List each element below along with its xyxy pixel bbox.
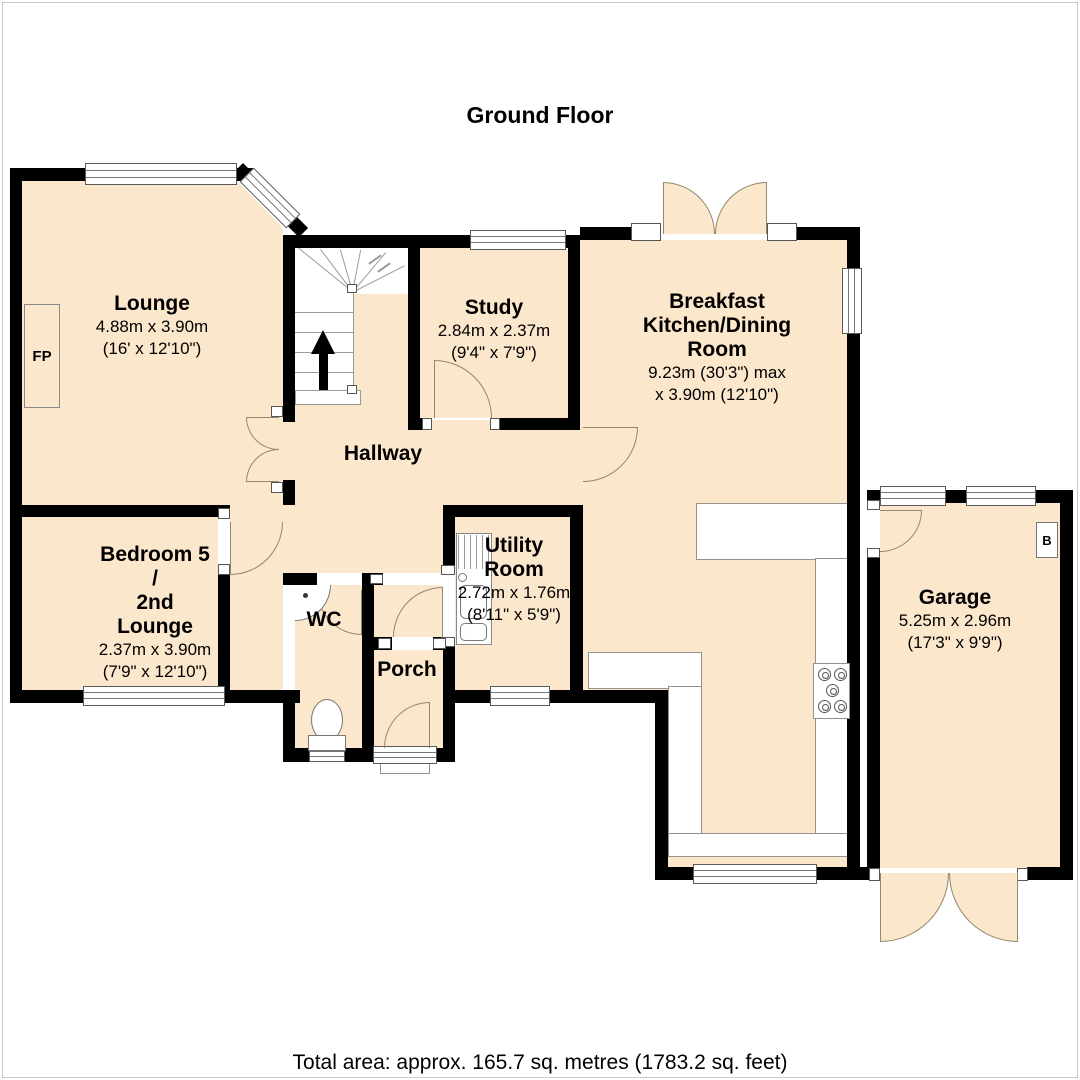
garage-label: Garage 5.25m x 2.96m (17'3" x 9'9") — [899, 586, 1011, 654]
door-jamb — [218, 564, 230, 575]
wall — [1060, 490, 1073, 880]
garage-door-leaf — [949, 873, 1018, 942]
study-label: Study 2.84m x 2.37m (9'4" x 7'9") — [438, 296, 550, 364]
french-door-leaf — [715, 182, 767, 234]
bedroom5-name-line3: 2nd — [99, 591, 211, 615]
bedroom5-dim-ft: (7'9" x 12'10") — [99, 661, 211, 683]
window — [85, 163, 237, 185]
door-post — [767, 223, 797, 241]
bedroom5-name-line2: / — [99, 567, 211, 591]
door-jamb — [433, 638, 446, 649]
door-post — [1017, 868, 1028, 881]
garage-door-leaf — [880, 873, 949, 942]
door-jamb — [370, 574, 383, 584]
toilet-cistern — [308, 735, 346, 751]
bedroom5-name-line4: Lounge — [99, 615, 211, 639]
stair-newel-post — [347, 284, 357, 293]
hob-burner — [818, 700, 831, 713]
wall — [283, 235, 295, 422]
lounge-dim-ft: (16' x 12'10") — [96, 338, 208, 360]
kitchen-counter-top — [696, 503, 848, 560]
fireplace-label: FP — [32, 348, 51, 365]
window — [83, 686, 225, 706]
bedroom5-label: Bedroom 5 / 2nd Lounge 2.37m x 3.90m (7'… — [99, 543, 211, 683]
door-jamb — [218, 508, 230, 519]
stair-newel-post — [347, 385, 357, 394]
door-jamb — [422, 418, 432, 430]
kitchen-counter-left — [668, 686, 702, 857]
wc-name: WC — [307, 608, 342, 632]
wall — [218, 575, 230, 690]
door-jamb — [271, 406, 283, 417]
garage-name: Garage — [899, 586, 1011, 610]
wall — [362, 585, 374, 748]
porch-label: Porch — [377, 658, 437, 682]
wc-label: WC — [307, 608, 342, 632]
garage-dim-ft: (17'3" x 9'9") — [899, 632, 1011, 654]
study-name: Study — [438, 296, 550, 320]
kitchen-label: Breakfast Kitchen/Dining Room 9.23m (30'… — [643, 290, 791, 406]
door-jamb — [867, 548, 880, 558]
garage-dim-m: 5.25m x 2.96m — [899, 610, 1011, 632]
window — [966, 486, 1036, 506]
window — [693, 864, 817, 884]
kitchen-name-line1: Breakfast — [643, 290, 791, 314]
fireplace: FP — [24, 304, 60, 408]
door-jamb — [441, 565, 455, 575]
wall — [570, 505, 583, 702]
wall — [580, 227, 635, 240]
boiler: B — [1036, 522, 1058, 558]
utility-label: Utility Room 2.72m x 1.76m (8'11" x 5'9"… — [458, 534, 570, 626]
floorplan-canvas: Ground Floor — [0, 0, 1080, 1080]
utility-dim-ft: (8'11" x 5'9") — [458, 604, 570, 626]
lounge-label: Lounge 4.88m x 3.90m (16' x 12'10") — [96, 292, 208, 360]
wall — [283, 480, 295, 505]
hob-burner — [826, 684, 839, 697]
page-title: Ground Floor — [467, 102, 614, 129]
utility-name-line1: Utility — [458, 534, 570, 558]
hallway-label: Hallway — [344, 442, 422, 466]
study-dim-m: 2.84m x 2.37m — [438, 320, 550, 342]
garage-floor — [880, 503, 1060, 868]
door-post — [631, 223, 661, 241]
hallway-name: Hallway — [344, 442, 422, 466]
wall — [568, 235, 580, 425]
wall — [10, 505, 230, 517]
wall — [1027, 867, 1073, 880]
kitchen-name-line3: Room — [643, 338, 791, 362]
bedroom5-dim-m: 2.37m x 3.90m — [99, 639, 211, 661]
wall — [816, 867, 860, 880]
window — [470, 230, 566, 250]
stair-tread-line — [295, 312, 353, 313]
door-post — [869, 868, 880, 881]
window — [490, 686, 550, 706]
stair-up-arrow-shaft — [319, 352, 328, 390]
utility-name-line2: Room — [458, 558, 570, 582]
wall — [443, 637, 455, 762]
kitchen-dim-line2: x 3.90m (12'10") — [643, 384, 791, 406]
stair-up-arrow-head — [311, 330, 335, 354]
boiler-label: B — [1042, 533, 1051, 548]
wall — [443, 690, 668, 703]
kitchen-counter-bottom — [668, 833, 848, 857]
french-door-leaf — [663, 182, 715, 234]
wall — [655, 690, 668, 880]
total-area-text: Total area: approx. 165.7 sq. metres (17… — [293, 1051, 788, 1075]
basin-tap — [303, 593, 308, 598]
door-jamb — [378, 638, 391, 649]
wall — [443, 505, 583, 517]
window — [880, 486, 946, 506]
kitchen-dim-line1: 9.23m (30'3") max — [643, 362, 791, 384]
door-jamb — [867, 500, 880, 510]
hob-burner — [834, 668, 847, 681]
door-threshold — [373, 746, 437, 764]
hob-burner — [834, 700, 847, 713]
stair-rail — [353, 288, 354, 392]
lounge-name: Lounge — [96, 292, 208, 316]
kitchen-counter-left-upper — [588, 652, 702, 689]
wall — [283, 573, 317, 585]
door-jamb — [271, 482, 283, 493]
utility-dim-m: 2.72m x 1.76m — [458, 582, 570, 604]
wall — [408, 235, 420, 418]
wall — [10, 168, 22, 702]
bedroom5-name-line1: Bedroom 5 — [99, 543, 211, 567]
porch-name: Porch — [377, 658, 437, 682]
door-jamb — [490, 418, 500, 430]
kitchen-name-line2: Kitchen/Dining — [643, 314, 791, 338]
wall — [867, 552, 880, 868]
lounge-dim-m: 4.88m x 3.90m — [96, 316, 208, 338]
wall — [490, 418, 580, 430]
hob-burner — [818, 668, 831, 681]
study-dim-ft: (9'4" x 7'9") — [438, 342, 550, 364]
window — [842, 268, 862, 334]
